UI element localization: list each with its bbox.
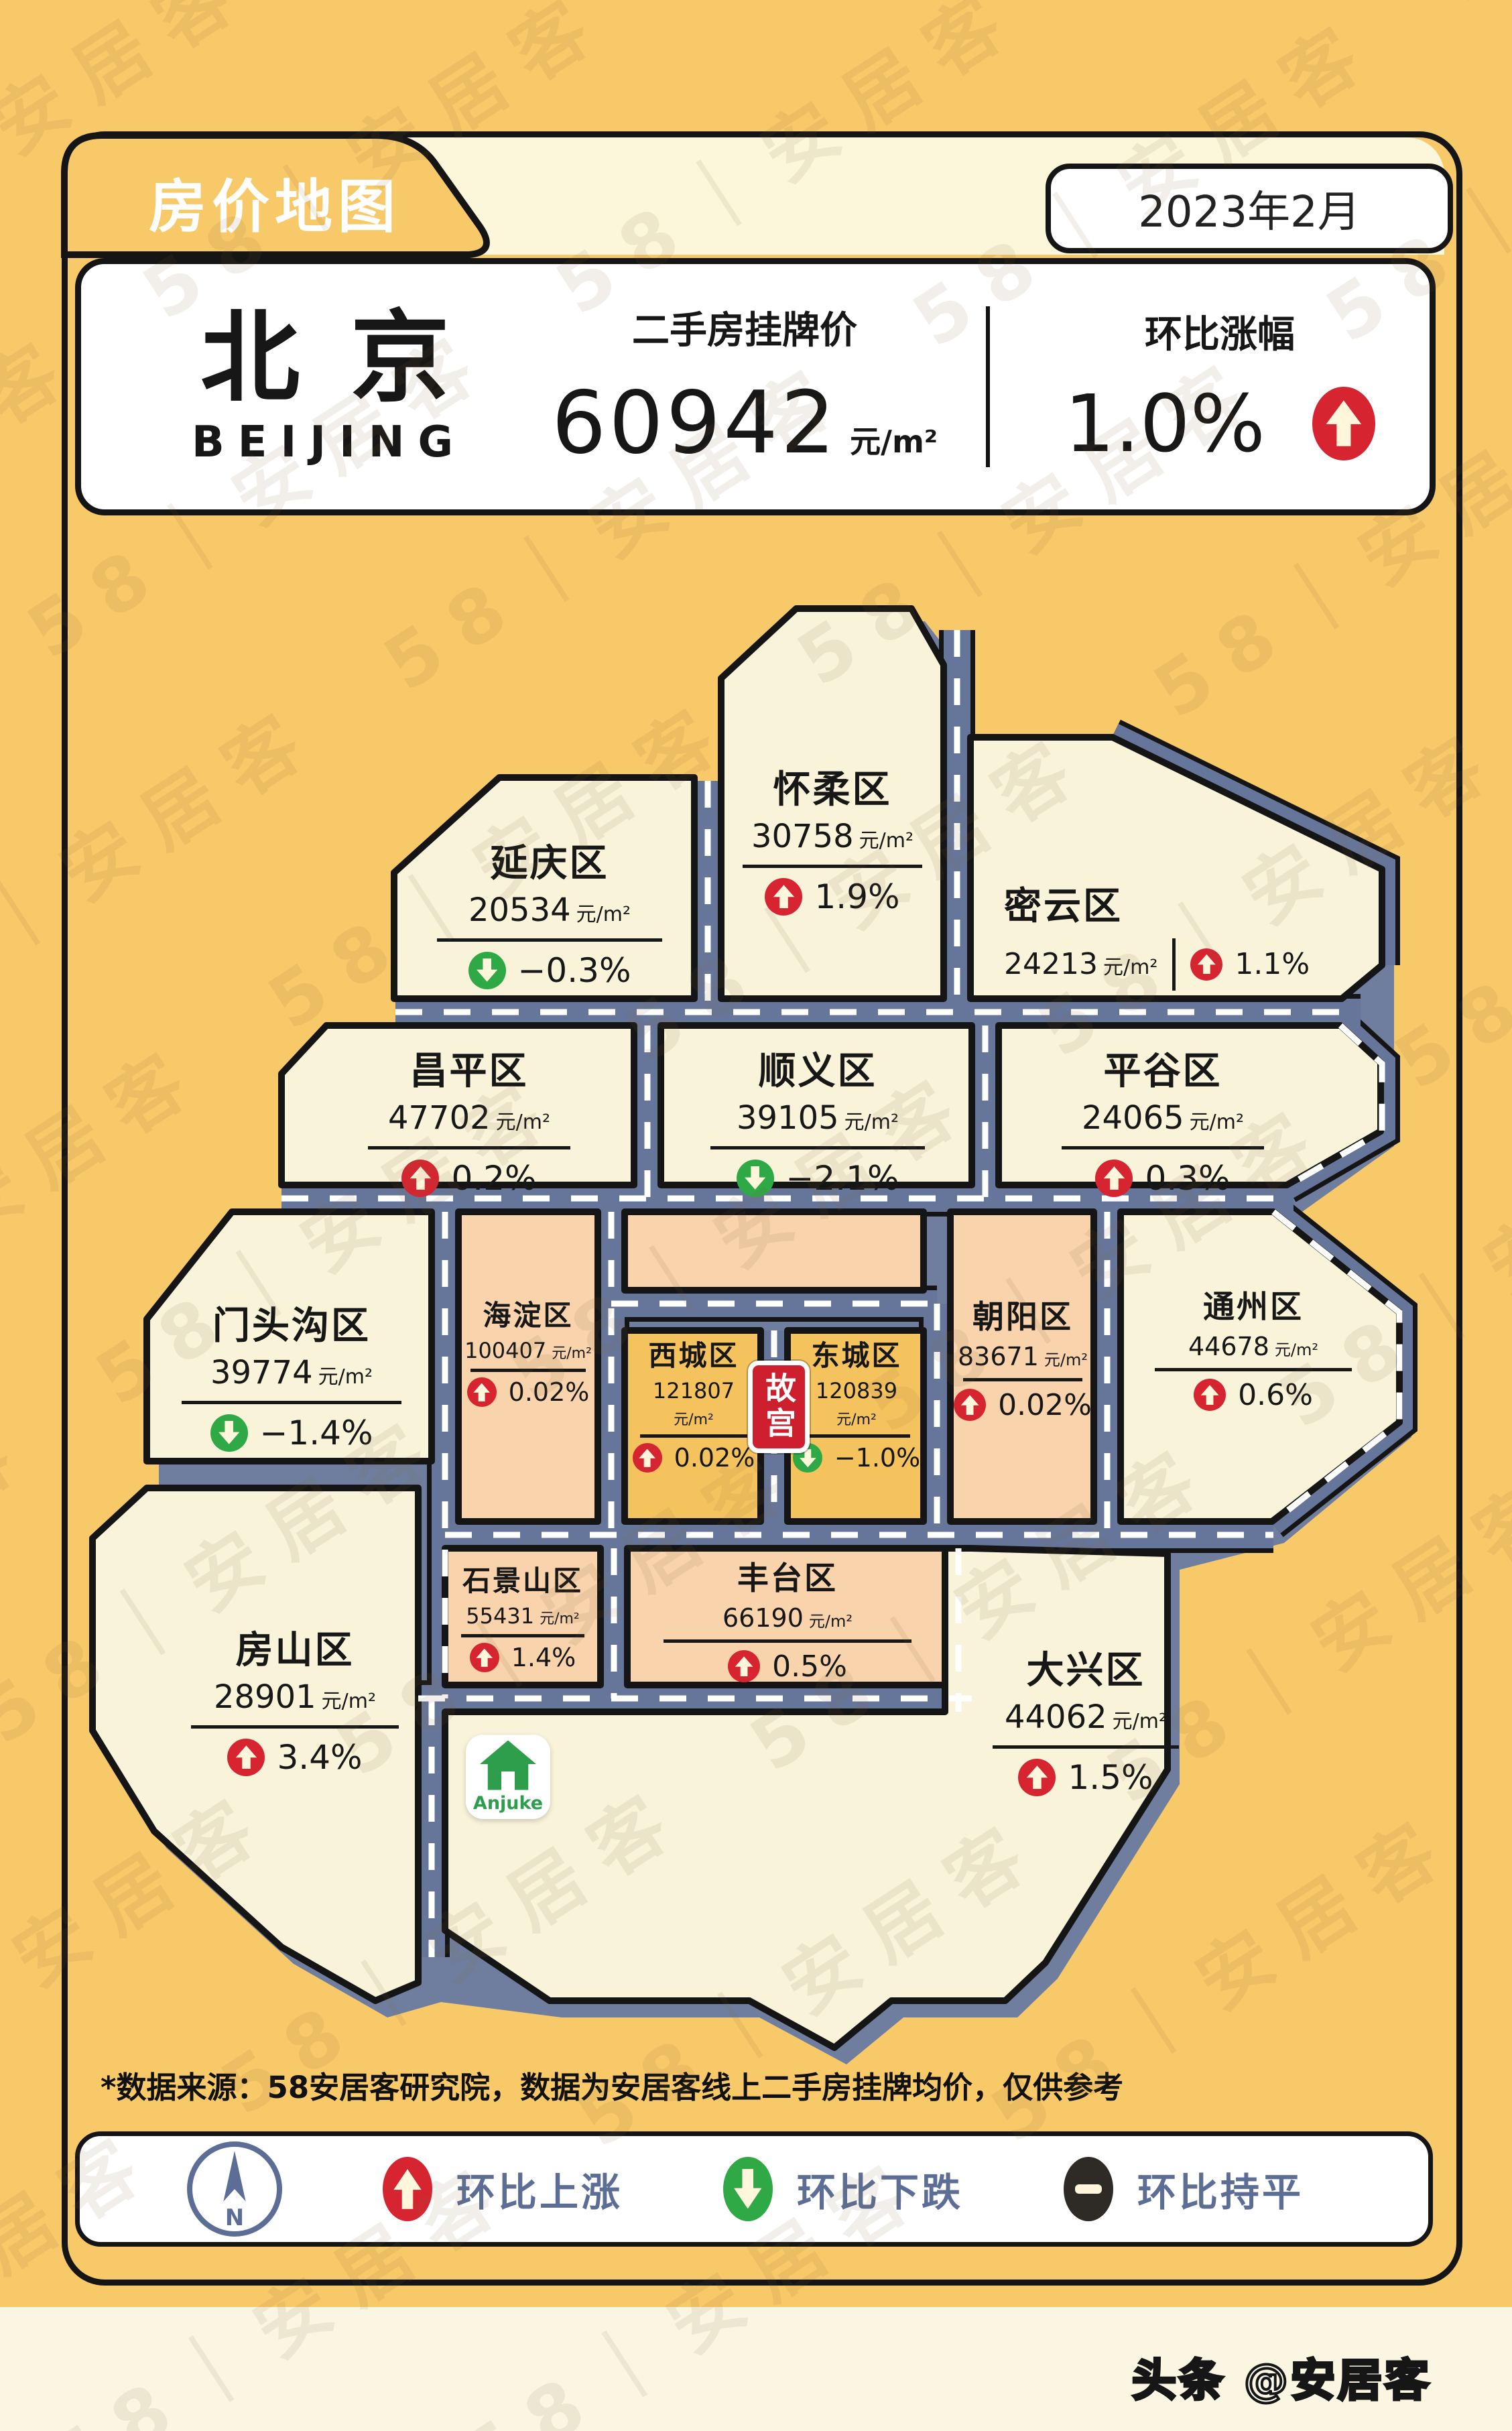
legend-item-up: 环比上涨 xyxy=(383,2157,623,2221)
district-pinggu: 平谷区 24065元/m² 0.3% xyxy=(1042,1051,1283,1198)
district-name: 海淀区 xyxy=(460,1300,596,1331)
trend-down-icon xyxy=(210,1414,248,1452)
mom-change-block: 环比涨幅 1.0% xyxy=(1010,304,1430,470)
district-change: −1.4% xyxy=(161,1414,422,1452)
trend-up-icon xyxy=(401,1160,439,1197)
listing-price-value: 60942 xyxy=(552,373,838,473)
district-xicheng: 西城区 121807元/m² 0.02% xyxy=(630,1341,757,1473)
district-price: 24065元/m² xyxy=(1042,1099,1283,1137)
district-price: 47702元/m² xyxy=(349,1099,590,1137)
district-change: 0.5% xyxy=(640,1649,935,1684)
forbidden-city-badge: 故宫 xyxy=(748,1361,810,1453)
district-change: 1.4% xyxy=(449,1643,596,1672)
district-dongcheng: 东城区 120839元/m² −1.0% xyxy=(793,1341,920,1473)
district-price: 24213元/m² xyxy=(1004,947,1157,981)
district-daxing: 大兴区 44062元/m² 1.5% xyxy=(975,1650,1196,1797)
divider xyxy=(470,1369,585,1372)
district-name: 昌平区 xyxy=(349,1051,590,1093)
city-summary-card: 北 京 BEIJING 二手房挂牌价 60942 元/m² 环比涨幅 1.0% xyxy=(75,258,1436,515)
district-price: 44678元/m² xyxy=(1136,1332,1371,1361)
district-change: 0.3% xyxy=(1042,1159,1283,1198)
district-name: 东城区 xyxy=(793,1341,920,1371)
divider xyxy=(461,1634,585,1637)
anjuke-logo-text: Anjuke xyxy=(473,1793,543,1814)
mom-change-label: 环比涨幅 xyxy=(1010,304,1430,359)
district-name: 丰台区 xyxy=(640,1562,935,1597)
divider xyxy=(963,1378,1082,1381)
district-name: 石景山区 xyxy=(449,1566,596,1597)
district-name: 房山区 xyxy=(171,1630,419,1672)
trend-flat-icon xyxy=(1064,2157,1113,2221)
district-name: 西城区 xyxy=(630,1341,757,1371)
trend-up-icon xyxy=(467,1377,497,1407)
district-change: −2.1% xyxy=(690,1159,945,1198)
legend-bar: N 环比上涨 环比下跌 环比持平 xyxy=(75,2131,1433,2247)
divider xyxy=(191,1725,399,1729)
divider xyxy=(640,1434,747,1438)
trend-up-icon xyxy=(383,2157,432,2221)
district-tongzhou: 通州区 44678元/m² 0.6% xyxy=(1136,1290,1371,1412)
trend-up-icon xyxy=(1190,948,1222,981)
district-chaoyang: 朝阳区 83671元/m² 0.02% xyxy=(952,1300,1094,1422)
date-badge: 2023年2月 xyxy=(1046,164,1453,253)
city-name-en: BEIJING xyxy=(135,418,523,467)
district-changping: 昌平区 47702元/m² 0.2% xyxy=(349,1051,590,1198)
district-name: 通州区 xyxy=(1136,1290,1371,1325)
trend-down-icon xyxy=(723,2157,773,2221)
divider xyxy=(664,1639,911,1643)
listing-price-unit: 元/m² xyxy=(850,418,938,462)
district-haidian: 海淀区 100407元/m² 0.02% xyxy=(460,1300,596,1407)
divider xyxy=(1172,938,1176,991)
district-yanqing: 延庆区 20534元/m² −0.3% xyxy=(416,843,684,990)
district-change: 0.02% xyxy=(630,1443,757,1473)
district-price: 66190元/m² xyxy=(640,1603,935,1633)
district-change: 3.4% xyxy=(171,1738,419,1777)
district-price: 30758元/m² xyxy=(725,818,940,855)
page-title: 房价地图 xyxy=(101,160,449,243)
legend-item-down: 环比下跌 xyxy=(723,2157,963,2221)
city-block: 北 京 BEIJING xyxy=(135,306,523,466)
district-name: 平谷区 xyxy=(1042,1051,1283,1093)
price-map-poster: 房价地图 2023年2月 北 京 BEIJING 二手房挂牌价 60942 元/… xyxy=(0,0,1512,2431)
city-name: 北 京 xyxy=(135,306,523,410)
trend-up-icon xyxy=(1095,1160,1133,1197)
district-price: 44062元/m² xyxy=(975,1698,1196,1736)
district-name: 门头沟区 xyxy=(161,1306,422,1347)
trend-up-icon xyxy=(633,1443,662,1473)
district-change: 1.9% xyxy=(725,877,940,916)
district-shunyi: 顺义区 39105元/m² −2.1% xyxy=(690,1051,945,1198)
district-change: 1.5% xyxy=(975,1758,1196,1797)
district-name: 大兴区 xyxy=(975,1650,1196,1692)
trend-up-icon xyxy=(1194,1379,1226,1411)
district-price: 120839元/m² xyxy=(793,1378,920,1429)
district-name: 延庆区 xyxy=(416,843,684,885)
trend-down-icon xyxy=(468,952,506,989)
district-change: 1.1% xyxy=(1190,947,1310,981)
card-divider xyxy=(986,306,990,467)
district-price: 83671元/m² xyxy=(952,1342,1094,1371)
compass-needle-icon xyxy=(213,2151,256,2212)
data-source-disclaimer: *数据来源：58安居客研究院，数据为安居客线上二手房挂牌均价，仅供参考 xyxy=(101,2063,1123,2107)
divider xyxy=(182,1401,401,1404)
district-miyun: 密云区 24213元/m² 1.1% xyxy=(1004,886,1366,991)
district-price: 121807元/m² xyxy=(630,1378,757,1429)
trend-up-icon xyxy=(1312,387,1375,460)
district-price: 100407元/m² xyxy=(460,1338,596,1363)
trend-up-icon xyxy=(954,1389,986,1421)
compass-north-label: N xyxy=(225,2204,244,2231)
mom-change-value: 1.0% xyxy=(1064,377,1265,470)
district-fengtai: 丰台区 66190元/m² 0.5% xyxy=(640,1562,935,1684)
district-price: 20534元/m² xyxy=(416,891,684,929)
district-change: −1.0% xyxy=(793,1443,920,1473)
divider xyxy=(710,1146,924,1149)
trend-up-icon xyxy=(728,1650,760,1682)
byline-credit: 头条 @安居客 xyxy=(1132,2345,1432,2409)
divider xyxy=(743,865,923,868)
district-price: 39105元/m² xyxy=(690,1099,945,1137)
district-price: 39774元/m² xyxy=(161,1354,422,1391)
trend-up-icon xyxy=(765,878,802,916)
district-change: 0.2% xyxy=(349,1159,590,1198)
legend-item-flat: 环比持平 xyxy=(1064,2157,1304,2221)
trend-up-icon xyxy=(470,1643,499,1672)
district-name: 怀柔区 xyxy=(725,769,940,811)
house-icon xyxy=(480,1741,536,1790)
listing-price-label: 二手房挂牌价 xyxy=(523,300,966,355)
district-name: 朝阳区 xyxy=(952,1300,1094,1335)
divider xyxy=(1062,1146,1264,1149)
district-change: −0.3% xyxy=(416,951,684,990)
district-shijingshan: 石景山区 55431元/m² 1.4% xyxy=(449,1566,596,1672)
district-mentougou: 门头沟区 39774元/m² −1.4% xyxy=(161,1306,422,1452)
listing-price-block: 二手房挂牌价 60942 元/m² xyxy=(523,300,966,473)
district-name: 顺义区 xyxy=(690,1051,945,1093)
district-price: 28901元/m² xyxy=(171,1678,419,1716)
district-change: 0.6% xyxy=(1136,1378,1371,1412)
date-text: 2023年2月 xyxy=(1138,178,1361,239)
divider xyxy=(803,1434,910,1438)
compass-icon: N xyxy=(187,2141,282,2237)
trend-up-icon xyxy=(1018,1759,1056,1796)
trend-down-icon xyxy=(737,1160,774,1197)
district-change: 0.02% xyxy=(952,1388,1094,1422)
district-price: 55431元/m² xyxy=(449,1603,596,1629)
anjuke-logo: Anjuke xyxy=(466,1735,550,1819)
district-change: 0.02% xyxy=(460,1377,596,1407)
divider xyxy=(1155,1368,1352,1371)
district-fangshan: 房山区 28901元/m² 3.4% xyxy=(171,1630,419,1777)
district-name: 密云区 xyxy=(1004,886,1366,928)
district-huairou: 怀柔区 30758元/m² 1.9% xyxy=(725,769,940,916)
divider xyxy=(437,938,662,942)
trend-up-icon xyxy=(227,1739,265,1776)
divider xyxy=(993,1745,1178,1749)
divider xyxy=(368,1146,570,1149)
